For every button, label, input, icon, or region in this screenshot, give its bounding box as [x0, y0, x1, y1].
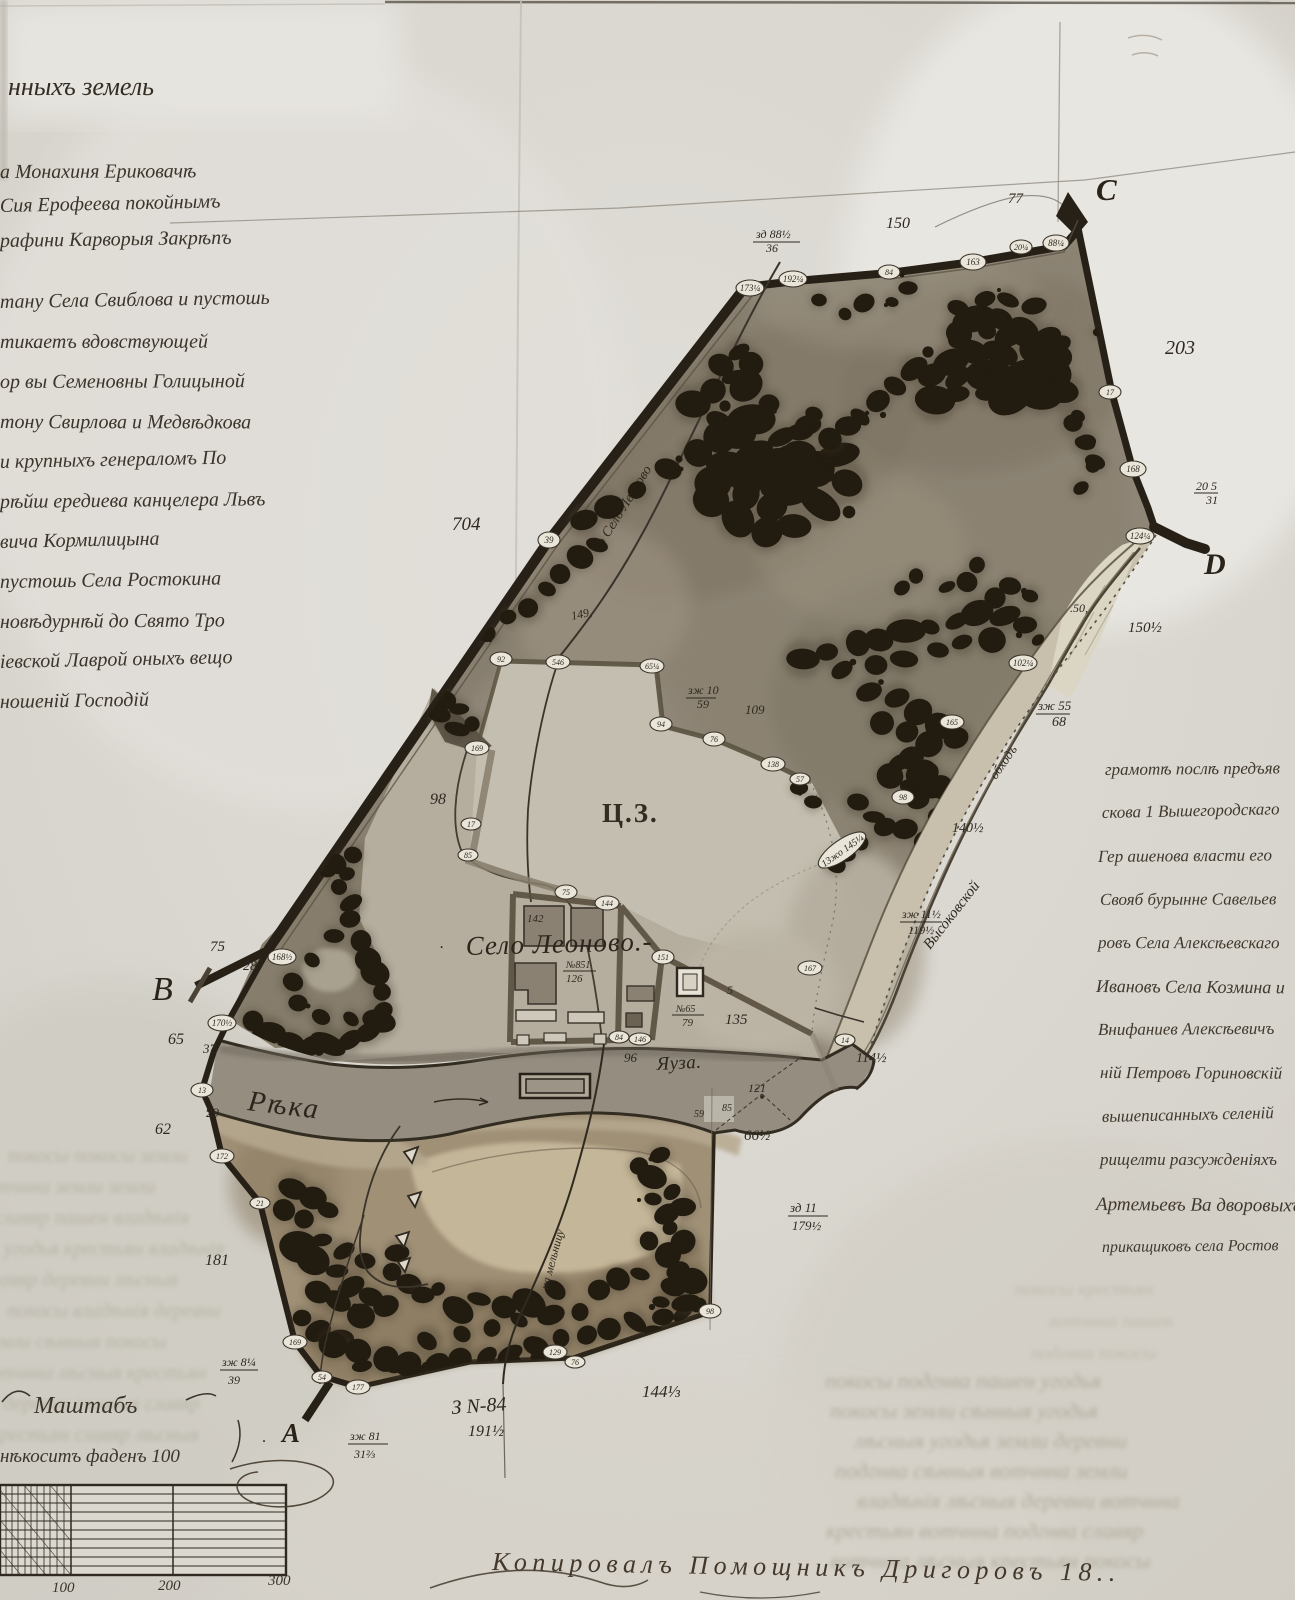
- svg-text:65¼: 65¼: [645, 662, 659, 671]
- svg-text:вотчнна лѣсныя крестьян: вотчнна лѣсныя крестьян: [0, 1362, 207, 1384]
- svg-text:Сия Ерофеева покойнымъ: Сия Ерофеева покойнымъ: [0, 190, 221, 217]
- svg-text:17: 17: [1106, 388, 1115, 397]
- svg-text:лѣсныя угодья земли деревни: лѣсныя угодья земли деревни: [852, 1428, 1127, 1453]
- svg-text:рафини Карворыя Закрѣпъ: рафини Карворыя Закрѣпъ: [0, 227, 232, 252]
- svg-text:126: 126: [566, 973, 583, 985]
- svg-text:37: 37: [202, 1041, 217, 1056]
- svg-text:75: 75: [210, 939, 226, 955]
- svg-text:98: 98: [899, 793, 907, 802]
- svg-text:угодья крестьян владѣнія: угодья крестьян владѣнія: [2, 1238, 224, 1260]
- svg-text:14: 14: [841, 1036, 849, 1045]
- svg-text:84: 84: [615, 1033, 623, 1042]
- svg-text:17: 17: [467, 820, 476, 829]
- svg-text:новѣдурнѣй до Свято Тро: новѣдурнѣй до Свято Тро: [0, 609, 225, 633]
- svg-text:150: 150: [886, 215, 910, 232]
- svg-text:150½: 150½: [1128, 620, 1162, 636]
- svg-text:а Монахиня Ериковачѣ: а Монахиня Ериковачѣ: [0, 160, 196, 183]
- svg-text:98: 98: [706, 1307, 714, 1316]
- svg-text:94: 94: [657, 720, 665, 729]
- svg-text:зд 11: зд 11: [789, 1200, 817, 1215]
- svg-text:рищелти разсужденіяхъ: рищелти разсужденіяхъ: [1099, 1150, 1277, 1169]
- svg-text:вича Кормилицына: вича Кормилицына: [0, 528, 160, 553]
- svg-text:земли сѣнныя покосы: земли сѣнныя покосы: [0, 1331, 167, 1353]
- svg-text:65: 65: [168, 1031, 184, 1048]
- svg-text:28: 28: [243, 959, 257, 974]
- svg-text:59: 59: [697, 697, 709, 711]
- svg-text:крестьян славяр лѣсныя: крестьян славяр лѣсныя: [0, 1424, 199, 1446]
- svg-text:163: 163: [966, 257, 980, 267]
- svg-text:покосы крестьян: покосы крестьян: [1015, 1279, 1153, 1300]
- svg-text:B: B: [152, 971, 173, 1008]
- svg-text:39: 39: [227, 1373, 240, 1387]
- svg-text:109: 109: [745, 702, 765, 717]
- svg-text:68: 68: [1052, 715, 1066, 730]
- svg-text:138: 138: [767, 760, 779, 769]
- svg-text:114½: 114½: [856, 1051, 887, 1066]
- svg-text:A: A: [280, 1418, 300, 1448]
- svg-text:177: 177: [352, 1383, 365, 1392]
- svg-text:20 5: 20 5: [1196, 479, 1217, 493]
- svg-text:ровъ Села Алексѣевскаго: ровъ Села Алексѣевскаго: [1097, 933, 1280, 952]
- svg-text:146: 146: [634, 1035, 646, 1044]
- svg-text:57: 57: [796, 775, 805, 784]
- svg-text:172: 172: [216, 1152, 228, 1161]
- svg-text:вотчнна земли земли: вотчнна земли земли: [0, 1176, 156, 1198]
- svg-text:59: 59: [694, 1109, 704, 1120]
- svg-text:покосы подгнва пашен угодья: покосы подгнва пашен угодья: [825, 1368, 1101, 1393]
- svg-text:191½: 191½: [468, 1423, 504, 1440]
- svg-text:200: 200: [158, 1578, 181, 1594]
- svg-text:D: D: [1203, 548, 1226, 581]
- svg-text:85: 85: [722, 1103, 732, 1114]
- svg-text:Внифаниев Алексѣевичъ: Внифаниев Алексѣевичъ: [1098, 1019, 1275, 1039]
- svg-text:5: 5: [727, 983, 733, 997]
- svg-text:21: 21: [256, 1199, 264, 1208]
- svg-text:владѣнія лѣсныя деревни вотчнн: владѣнія лѣсныя деревни вотчнна: [857, 1488, 1180, 1513]
- svg-text:C: C: [1096, 172, 1117, 207]
- svg-text:167: 167: [804, 964, 817, 973]
- svg-text:36: 36: [765, 241, 778, 255]
- svg-text:славяр пашен владѣнія: славяр пашен владѣнія: [0, 1207, 189, 1229]
- svg-text:151: 151: [657, 953, 669, 962]
- svg-text:144: 144: [601, 899, 613, 908]
- svg-text:зж 8¼: зж 8¼: [221, 1355, 256, 1369]
- svg-text:75: 75: [562, 888, 570, 897]
- svg-text:скова 1 Вышегородскаго: скова 1 Вышегородскаго: [1102, 799, 1280, 822]
- svg-text:.50,: .50,: [1070, 601, 1088, 615]
- svg-text:прикащиковъ села Ростов: прикащиковъ села Ростов: [1102, 1237, 1279, 1256]
- svg-text:тикаетъ вдовствующей: тикаетъ вдовствующей: [0, 331, 208, 353]
- svg-text:85: 85: [464, 851, 472, 860]
- svg-text:13: 13: [198, 1086, 206, 1095]
- svg-text:Маштабъ: Маштабъ: [33, 1393, 137, 1419]
- svg-text:129: 129: [549, 1348, 561, 1357]
- svg-text:170½: 170½: [212, 1018, 233, 1028]
- svg-text:96: 96: [624, 1050, 638, 1065]
- svg-text:.: .: [262, 1429, 266, 1446]
- svg-text:124¼: 124¼: [1130, 531, 1151, 541]
- svg-text:54: 54: [318, 1373, 326, 1382]
- svg-text:№851: №851: [565, 960, 590, 971]
- svg-text:славяр деревни лѣсныя: славяр деревни лѣсныя: [0, 1269, 178, 1291]
- svg-text:вотчнна пашен: вотчнна пашен: [1049, 1311, 1174, 1332]
- svg-text:подгнва сѣнныя вотчнна земли: подгнва сѣнныя вотчнна земли: [835, 1458, 1128, 1483]
- svg-text:покосы земли сѣнныя угодья: покосы земли сѣнныя угодья: [830, 1398, 1098, 1423]
- svg-text:100: 100: [52, 1580, 75, 1596]
- svg-text:62: 62: [155, 1121, 171, 1138]
- svg-text:165: 165: [946, 718, 958, 727]
- svg-text:пустошь Села Ростокина: пустошь Села Ростокина: [0, 568, 221, 593]
- svg-text:39: 39: [544, 535, 555, 545]
- svg-text:Яуза.: Яуза.: [655, 1052, 702, 1075]
- svg-text:168½: 168½: [272, 952, 293, 962]
- svg-text:Ивановъ Села Козмина и: Ивановъ Села Козмина и: [1095, 976, 1285, 997]
- svg-text:704: 704: [452, 514, 481, 535]
- svg-text:нѣкоситъ фаденъ 100: нѣкоситъ фаденъ 100: [0, 1446, 180, 1467]
- svg-text:зд 88½: зд 88½: [755, 227, 791, 241]
- svg-text:ор вы Семеновны Голицыной: ор вы Семеновны Голицыной: [0, 370, 245, 393]
- svg-text:92: 92: [497, 655, 505, 664]
- svg-text:203: 203: [1165, 337, 1195, 359]
- svg-text:179½: 179½: [792, 1218, 822, 1233]
- svg-text:29: 29: [206, 1105, 220, 1120]
- svg-text:31: 31: [1205, 493, 1218, 507]
- svg-text:31⅔: 31⅔: [353, 1447, 375, 1461]
- svg-text:144⅓: 144⅓: [642, 1382, 681, 1401]
- svg-text:169: 169: [471, 744, 483, 753]
- svg-text:ношеній Господій: ношеній Господій: [0, 689, 149, 713]
- svg-text:рѣйш ередиева канцелера Львъ: рѣйш ередиева канцелера Львъ: [0, 488, 265, 513]
- svg-text:Гер ашенова власти его: Гер ашенова власти его: [1097, 845, 1272, 866]
- svg-text:300: 300: [267, 1573, 291, 1589]
- svg-text:168: 168: [1126, 464, 1140, 474]
- svg-text:вышеписанныхъ селеній: вышеписанныхъ селеній: [1102, 1103, 1275, 1126]
- svg-text:88¼: 88¼: [1048, 238, 1064, 248]
- svg-text:зж 81: зж 81: [349, 1429, 381, 1443]
- svg-text:173¼: 173¼: [740, 283, 761, 293]
- svg-text:140½: 140½: [952, 821, 984, 836]
- svg-text:Артемьевъ Ва дворовыхъ: Артемьевъ Ва дворовыхъ: [1094, 1194, 1295, 1216]
- svg-text:102¼: 102¼: [1013, 658, 1034, 668]
- svg-text:подгнва покосы: подгнва покосы: [1031, 1343, 1157, 1364]
- svg-text:зж 10: зж 10: [687, 683, 719, 697]
- svg-text:и крупныхъ генераломъ По: и крупныхъ генераломъ По: [0, 447, 227, 473]
- svg-text:З N-84: З N-84: [451, 1393, 507, 1419]
- svg-text:Село Леоново.-: Село Леоново.-: [465, 926, 653, 961]
- svg-text:нныхъ земель: нныхъ земель: [8, 72, 154, 101]
- svg-text:98: 98: [430, 791, 446, 808]
- svg-text:крестьян вотчнна подгнва славя: крестьян вотчнна подгнва славяр: [826, 1518, 1143, 1543]
- svg-text:546: 546: [552, 658, 564, 667]
- svg-text:тану Села Свиблова и пустошь: тану Села Свиблова и пустошь: [0, 287, 270, 313]
- svg-text:покосы покосы земли: покосы покосы земли: [8, 1145, 188, 1167]
- svg-text:79: 79: [682, 1017, 694, 1029]
- svg-text:142: 142: [527, 913, 544, 925]
- svg-text:76: 76: [710, 735, 718, 744]
- svg-text:192¼: 192¼: [783, 274, 804, 284]
- svg-text:Свояб бурынне Савельев: Свояб бурынне Савельев: [1100, 889, 1277, 909]
- svg-text:121: 121: [748, 1081, 766, 1095]
- svg-text:зж 11½: зж 11½: [901, 907, 941, 921]
- svg-text:.: .: [440, 935, 444, 952]
- svg-text:тону Свирлова и Медвѣдкова: тону Свирлова и Медвѣдкова: [0, 411, 251, 433]
- svg-text:Ц.З.: Ц.З.: [602, 798, 659, 828]
- svg-text:зж 55: зж 55: [1037, 698, 1072, 713]
- svg-text:76: 76: [571, 1358, 579, 1367]
- svg-text:77: 77: [1008, 191, 1025, 207]
- svg-text:84: 84: [885, 268, 893, 277]
- svg-text:ній Петровъ Гориновскій: ній Петровъ Гориновскій: [1100, 1063, 1283, 1083]
- svg-text:№65: №65: [675, 1004, 695, 1015]
- svg-text:135: 135: [725, 1012, 748, 1028]
- svg-text:169: 169: [289, 1338, 301, 1347]
- svg-text:20¼: 20¼: [1014, 243, 1028, 252]
- svg-text:66½: 66½: [744, 1128, 770, 1144]
- svg-text:грамотѣ послѣ предъяв: грамотѣ послѣ предъяв: [1105, 758, 1281, 779]
- svg-text:покосы владѣнія деревни: покосы владѣнія деревни: [7, 1300, 221, 1322]
